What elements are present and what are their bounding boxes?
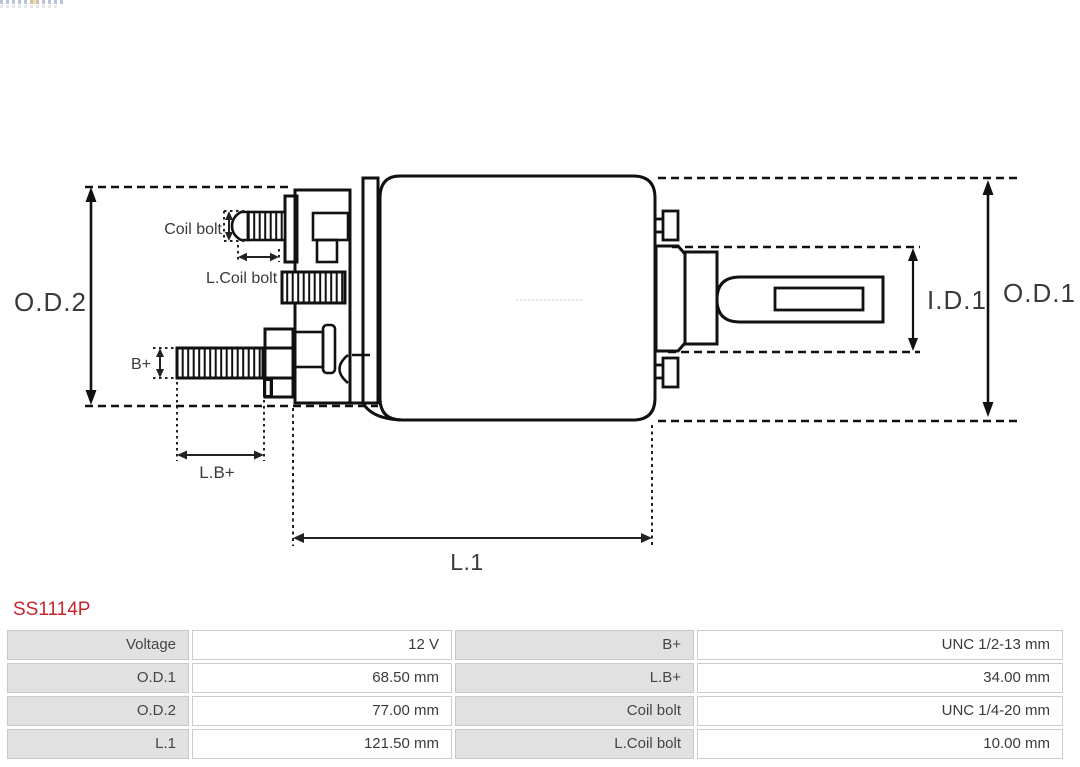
spec-value-cell: 34.00 mm (697, 663, 1063, 693)
b-plus-label: B+ (131, 356, 151, 373)
spec-value-cell: UNC 1/4-20 mm (697, 696, 1063, 726)
spec-label-cell: Voltage (7, 630, 189, 660)
dim-b-plus (153, 348, 175, 378)
l1-label: L.1 (450, 549, 483, 575)
l-b-plus-label: L.B+ (199, 463, 235, 482)
od2-label: O.D.2 (14, 287, 87, 317)
spec-value-cell: 121.50 mm (192, 729, 452, 759)
solenoid-diagram: O.D.2 Coil bolt (0, 0, 1080, 600)
dim-l-b-plus (177, 382, 264, 461)
spec-label-cell: L.1 (7, 729, 189, 759)
spec-label-cell: L.B+ (455, 663, 694, 693)
spec-label-cell: O.D.2 (7, 696, 189, 726)
b-plus-terminal (177, 325, 335, 397)
spec-label-cell: O.D.1 (7, 663, 189, 693)
od1-label: O.D.1 (1003, 278, 1076, 308)
spec-value-cell: 77.00 mm (192, 696, 452, 726)
spec-value-cell: 12 V (192, 630, 452, 660)
coil-bolt-label: Coil bolt (164, 221, 222, 238)
coil-bolt (232, 212, 285, 240)
spec-value-cell: 68.50 mm (192, 663, 452, 693)
spec-value-cell: UNC 1/2-13 mm (697, 630, 1063, 660)
solenoid-body (380, 176, 655, 420)
plunger (656, 246, 883, 351)
right-terminal-tabs (655, 211, 678, 387)
dim-l1 (293, 408, 652, 546)
product-spec-page: O.D.2 Coil bolt (0, 0, 1080, 767)
spec-value-cell: 10.00 mm (697, 729, 1063, 759)
dim-l-coil-bolt (238, 245, 279, 262)
spec-label-cell: Coil bolt (455, 696, 694, 726)
l-coil-bolt-label: L.Coil bolt (206, 270, 278, 287)
id1-label: I.D.1 (927, 285, 987, 315)
part-number: SS1114P (13, 599, 90, 621)
solenoid-cap (282, 178, 402, 420)
spec-label-cell: L.Coil bolt (455, 729, 694, 759)
spec-label-cell: B+ (455, 630, 694, 660)
spec-table: Voltage 12 V B+ UNC 1/2-13 mm O.D.1 68.5… (7, 630, 1063, 759)
